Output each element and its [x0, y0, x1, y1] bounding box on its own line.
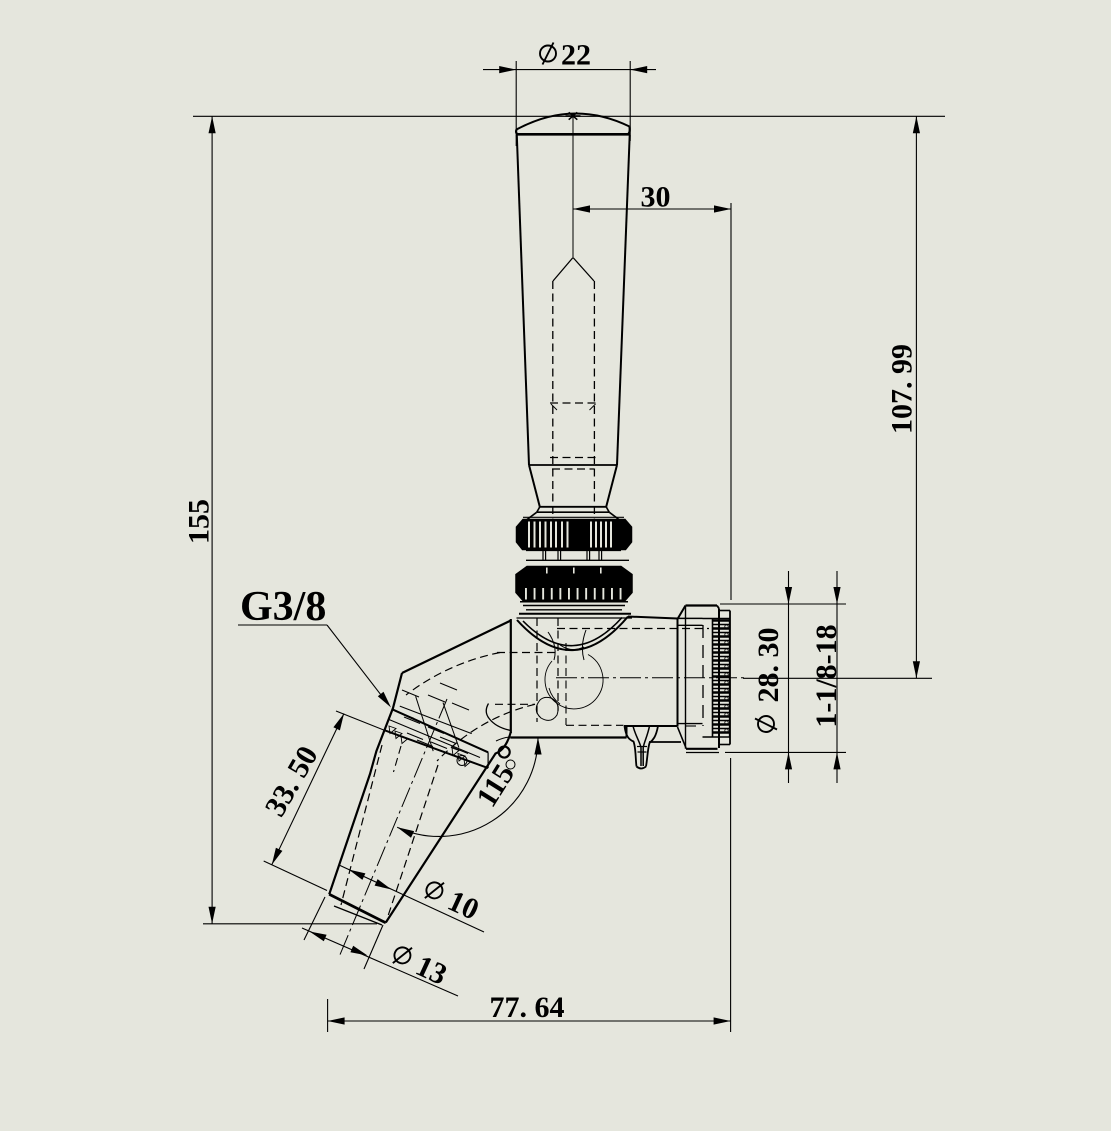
svg-text:28. 30: 28. 30 — [752, 628, 785, 703]
svg-text:G3/8: G3/8 — [240, 584, 326, 630]
svg-text:22: 22 — [561, 39, 591, 72]
svg-text:77. 64: 77. 64 — [490, 991, 565, 1024]
svg-text:30: 30 — [641, 181, 671, 214]
svg-text:1-1/8-18: 1-1/8-18 — [810, 624, 843, 727]
svg-text:155: 155 — [183, 499, 216, 544]
svg-text:107. 99: 107. 99 — [886, 344, 919, 434]
